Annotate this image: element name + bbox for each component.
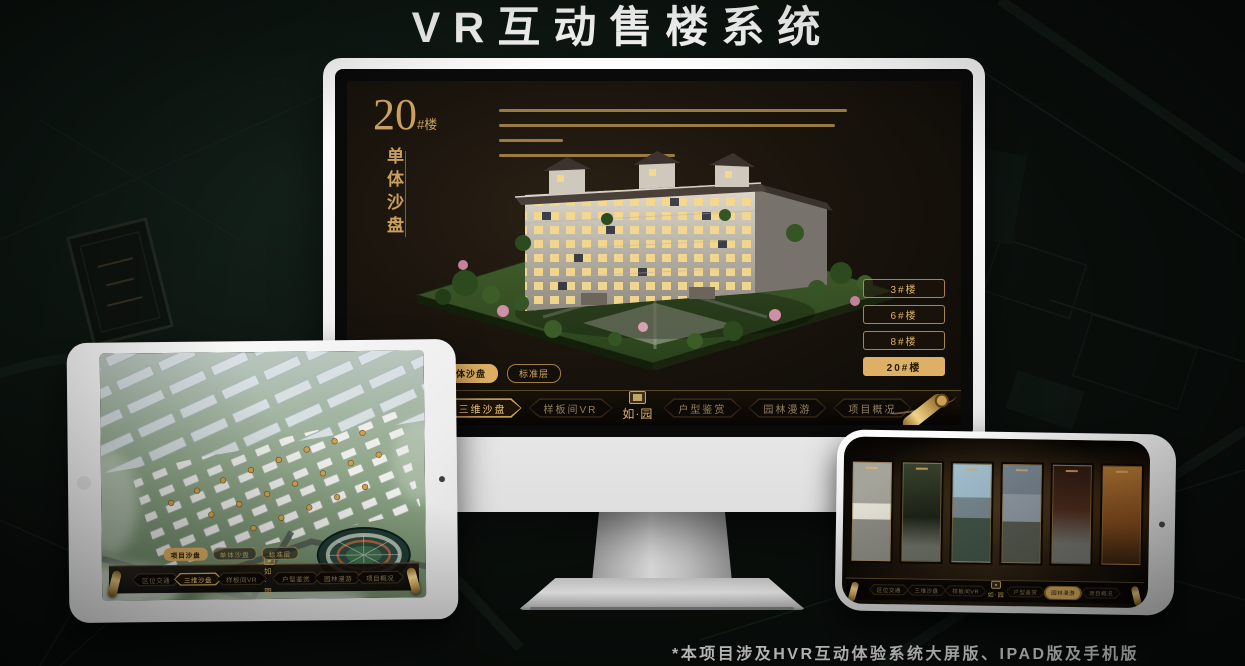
nav-floorplan-gallery[interactable]: 户型鉴赏 <box>1008 586 1042 599</box>
nav-garden-roam[interactable]: 园林漫游 <box>1046 586 1080 599</box>
nav-location-transport[interactable]: 区位交通 <box>135 572 177 586</box>
floor-button-8[interactable]: 8#楼 <box>863 331 945 350</box>
floor-button-3[interactable]: 3#楼 <box>863 279 945 298</box>
stage: VR互动售楼系统 20#楼 单体沙盘 <box>0 0 1245 666</box>
gallery-panel[interactable] <box>901 462 942 562</box>
nav-project-overview[interactable]: 项目概况 <box>359 570 401 584</box>
tablet-logo-mark <box>77 476 91 490</box>
gallery-panel[interactable] <box>851 462 892 562</box>
building-model-illustration[interactable] <box>403 125 908 370</box>
nav-floorplan-gallery[interactable]: 户型鉴赏 <box>666 398 738 419</box>
brand-logo: 如·园 <box>988 580 1005 598</box>
tablet-tab-standard-floor[interactable]: 标准层 <box>262 547 299 560</box>
seal-icon <box>991 580 1001 588</box>
tablet-view-tab-group: 项目沙盘 单体沙盘 标准层 <box>164 547 299 561</box>
tab-standard-floor[interactable]: 标准层 <box>507 364 561 383</box>
nav-3d-sandbox[interactable]: 三维沙盘 <box>447 398 519 419</box>
tablet-navbar: 区位交通 三维沙盘 样板间VR 如·园 户型鉴赏 园林漫游 项目概况 <box>109 562 419 593</box>
floor-button-group: 3#楼 6#楼 8#楼 20#楼 <box>863 279 945 376</box>
floor-button-6[interactable]: 6#楼 <box>863 305 945 324</box>
nav-3d-sandbox[interactable]: 三维沙盘 <box>177 572 219 586</box>
brand-logo: 如·园 <box>264 556 275 597</box>
brand-logo: 如·园 <box>622 391 653 422</box>
brand-logo-text: 如·园 <box>264 566 275 597</box>
nav-project-overview[interactable]: 项目概况 <box>1084 587 1118 600</box>
gallery-panel-row <box>842 461 1150 565</box>
nav-showroom-vr[interactable]: 样板间VR <box>219 571 264 585</box>
monitor-stand-neck <box>592 512 732 582</box>
nav-3d-sandbox[interactable]: 三维沙盘 <box>909 584 943 597</box>
nav-floorplan-gallery[interactable]: 户型鉴赏 <box>275 571 317 585</box>
tablet-device: 项目沙盘 单体沙盘 标准层 区位交通 三维沙盘 样板间VR 如·园 户型鉴赏 园… <box>67 339 459 623</box>
nav-location-transport[interactable]: 区位交通 <box>872 583 906 596</box>
phone-navbar: 区位交通 三维沙盘 样板间VR 如·园 户型鉴赏 园林漫游 项目概况 <box>846 578 1144 605</box>
tablet-app-screen: 项目沙盘 单体沙盘 标准层 区位交通 三维沙盘 样板间VR 如·园 户型鉴赏 园… <box>100 350 427 600</box>
phone-app-screen: 区位交通 三维沙盘 样板间VR 如·园 户型鉴赏 园林漫游 项目概况 <box>842 436 1151 608</box>
gallery-panel[interactable] <box>951 463 992 563</box>
gallery-panel[interactable] <box>1101 466 1142 566</box>
page-title: VR互动售楼系统 <box>0 0 1245 56</box>
gallery-panel[interactable] <box>1001 464 1042 564</box>
nav-showroom-vr[interactable]: 样板间VR <box>532 398 610 419</box>
tablet-tab-project-sandbox[interactable]: 项目沙盘 <box>164 548 208 561</box>
phone-device: 区位交通 三维沙盘 样板间VR 如·园 户型鉴赏 园林漫游 项目概况 <box>835 429 1177 615</box>
camera-icon <box>1159 521 1165 527</box>
brand-logo-text: 如·园 <box>988 589 1005 598</box>
brand-logo-text: 如·园 <box>622 405 653 422</box>
camera-icon <box>439 476 445 482</box>
floor-button-20[interactable]: 20#楼 <box>863 357 945 376</box>
seal-icon <box>629 391 646 404</box>
footnote-text: *本项目涉及HVR互动体验系统大屏版、IPAD版及手机版 <box>672 640 1139 664</box>
tablet-tab-single-sandbox[interactable]: 单体沙盘 <box>213 547 257 560</box>
nav-garden-roam[interactable]: 园林漫游 <box>751 398 823 419</box>
nav-garden-roam[interactable]: 园林漫游 <box>317 570 359 584</box>
monitor-stand-base <box>518 578 806 610</box>
gallery-panel[interactable] <box>1051 465 1092 565</box>
nav-showroom-vr[interactable]: 样板间VR <box>947 585 984 598</box>
